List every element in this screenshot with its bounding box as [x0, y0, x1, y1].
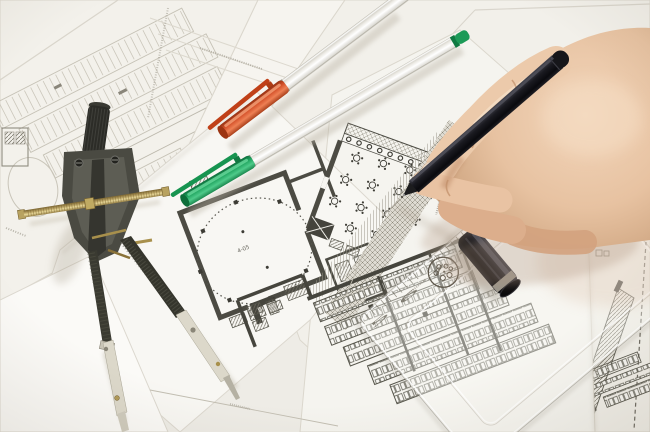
photo-architect-blueprints: 4-05 [0, 0, 650, 432]
photo-vignette [0, 0, 650, 432]
photo-canvas: 4-05 [0, 0, 650, 432]
